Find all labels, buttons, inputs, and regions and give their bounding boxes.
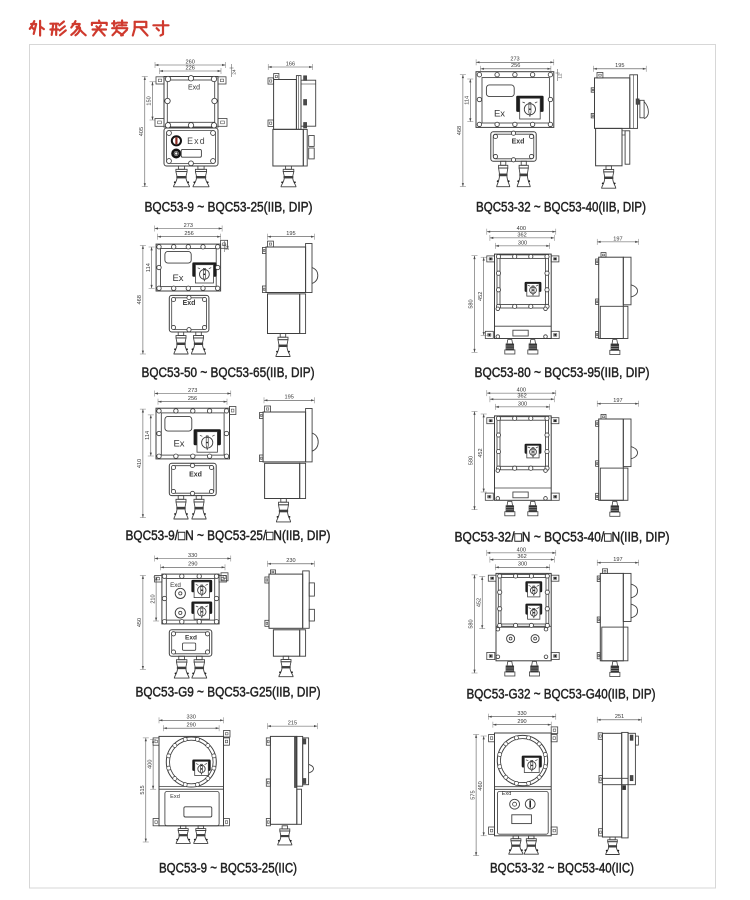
svg-text:BQC53-9 ~ BQC53-25(IIC): BQC53-9 ~ BQC53-25(IIC) xyxy=(159,860,297,875)
svg-text:Exd: Exd xyxy=(187,136,206,146)
svg-text:452: 452 xyxy=(478,292,484,301)
svg-text:BQC53-9/□N ~ BQC53-25/□N(IIB,: BQC53-9/□N ~ BQC53-25/□N(IIB, DIP) xyxy=(126,528,331,543)
svg-text:Exd: Exd xyxy=(170,794,180,800)
svg-text:BQC53-32 ~ BQC53-40(IIC): BQC53-32 ~ BQC53-40(IIC) xyxy=(490,860,634,875)
svg-text:Ex: Ex xyxy=(172,273,183,284)
svg-text:290: 290 xyxy=(188,562,197,568)
svg-text:197: 197 xyxy=(613,557,622,563)
svg-text:300: 300 xyxy=(518,240,527,246)
svg-text:450: 450 xyxy=(137,618,143,627)
svg-text:197: 197 xyxy=(613,398,622,404)
svg-text:210: 210 xyxy=(150,594,156,603)
svg-text:400: 400 xyxy=(517,226,526,232)
svg-text:273: 273 xyxy=(188,388,197,394)
svg-text:290: 290 xyxy=(517,719,526,725)
svg-text:197: 197 xyxy=(613,236,622,242)
svg-text:Exd: Exd xyxy=(185,635,197,642)
svg-text:515: 515 xyxy=(140,785,146,794)
svg-text:405: 405 xyxy=(139,127,145,136)
svg-text:24: 24 xyxy=(232,69,237,75)
svg-text:Exd: Exd xyxy=(188,85,200,92)
svg-text:Exd: Exd xyxy=(512,139,525,146)
svg-text:575: 575 xyxy=(470,790,476,799)
svg-text:195: 195 xyxy=(285,395,294,401)
svg-text:256: 256 xyxy=(184,231,193,237)
svg-text:400: 400 xyxy=(517,547,526,553)
svg-text:195: 195 xyxy=(615,63,624,69)
svg-text:226: 226 xyxy=(186,65,195,71)
svg-text:Exd: Exd xyxy=(183,300,196,307)
svg-text:580: 580 xyxy=(469,299,475,308)
svg-text:150: 150 xyxy=(147,96,153,105)
svg-text:273: 273 xyxy=(510,57,519,63)
svg-text:12: 12 xyxy=(558,73,563,79)
svg-text:BQC53-G32 ~ BQC53-G40(IIB, DIP: BQC53-G32 ~ BQC53-G40(IIB, DIP) xyxy=(467,687,656,702)
svg-text:300: 300 xyxy=(518,562,527,568)
svg-text:300: 300 xyxy=(518,401,527,407)
svg-text:BQC53-50 ~ BQC53-65(IIB, DIP): BQC53-50 ~ BQC53-65(IIB, DIP) xyxy=(142,365,315,380)
svg-text:330: 330 xyxy=(517,711,526,717)
svg-text:215: 215 xyxy=(288,721,297,727)
svg-text:273: 273 xyxy=(184,223,193,229)
svg-text:Exd: Exd xyxy=(189,472,202,479)
svg-text:11: 11 xyxy=(225,245,230,250)
svg-text:251: 251 xyxy=(615,714,624,720)
svg-text:114: 114 xyxy=(145,431,151,440)
svg-text:Exd: Exd xyxy=(502,791,512,797)
svg-text:Ex: Ex xyxy=(494,109,505,120)
svg-text:452: 452 xyxy=(476,598,482,607)
svg-text:330: 330 xyxy=(188,553,197,559)
svg-text:256: 256 xyxy=(511,63,520,69)
svg-text:580: 580 xyxy=(469,619,475,628)
svg-text:230: 230 xyxy=(286,558,295,564)
svg-text:195: 195 xyxy=(286,231,295,237)
svg-text:468: 468 xyxy=(457,126,463,135)
svg-text:452: 452 xyxy=(478,448,484,457)
svg-text:BQC53-80 ~ BQC53-95(IIB, DIP): BQC53-80 ~ BQC53-95(IIB, DIP) xyxy=(475,365,650,380)
svg-text:BQC53-G9 ~ BQC53-G25(IIB, DIP): BQC53-G9 ~ BQC53-G25(IIB, DIP) xyxy=(136,685,321,700)
svg-text:468: 468 xyxy=(137,295,143,304)
svg-text:400: 400 xyxy=(517,388,526,394)
svg-text:362: 362 xyxy=(517,394,526,400)
svg-text:BQC53-9 ~ BQC53-25(IIB, DIP): BQC53-9 ~ BQC53-25(IIB, DIP) xyxy=(145,200,313,215)
svg-text:362: 362 xyxy=(517,232,526,238)
svg-text:330: 330 xyxy=(187,715,196,721)
svg-text:256: 256 xyxy=(188,396,197,402)
svg-text:400: 400 xyxy=(147,760,153,769)
svg-text:Ex: Ex xyxy=(173,439,184,450)
svg-text:BQC53-32/□N ~ BQC53-40/□N(IIB,: BQC53-32/□N ~ BQC53-40/□N(IIB, DIP) xyxy=(455,529,670,544)
svg-text:166: 166 xyxy=(286,61,295,67)
svg-text:410: 410 xyxy=(137,459,143,468)
svg-text:580: 580 xyxy=(469,456,475,465)
svg-text:362: 362 xyxy=(517,554,526,560)
svg-text:BQC53-32 ~ BQC53-40(IIB, DIP): BQC53-32 ~ BQC53-40(IIB, DIP) xyxy=(476,200,646,215)
svg-text:114: 114 xyxy=(465,96,471,105)
svg-text:114: 114 xyxy=(146,263,152,272)
svg-text:290: 290 xyxy=(187,723,196,729)
svg-text:460: 460 xyxy=(478,781,484,790)
